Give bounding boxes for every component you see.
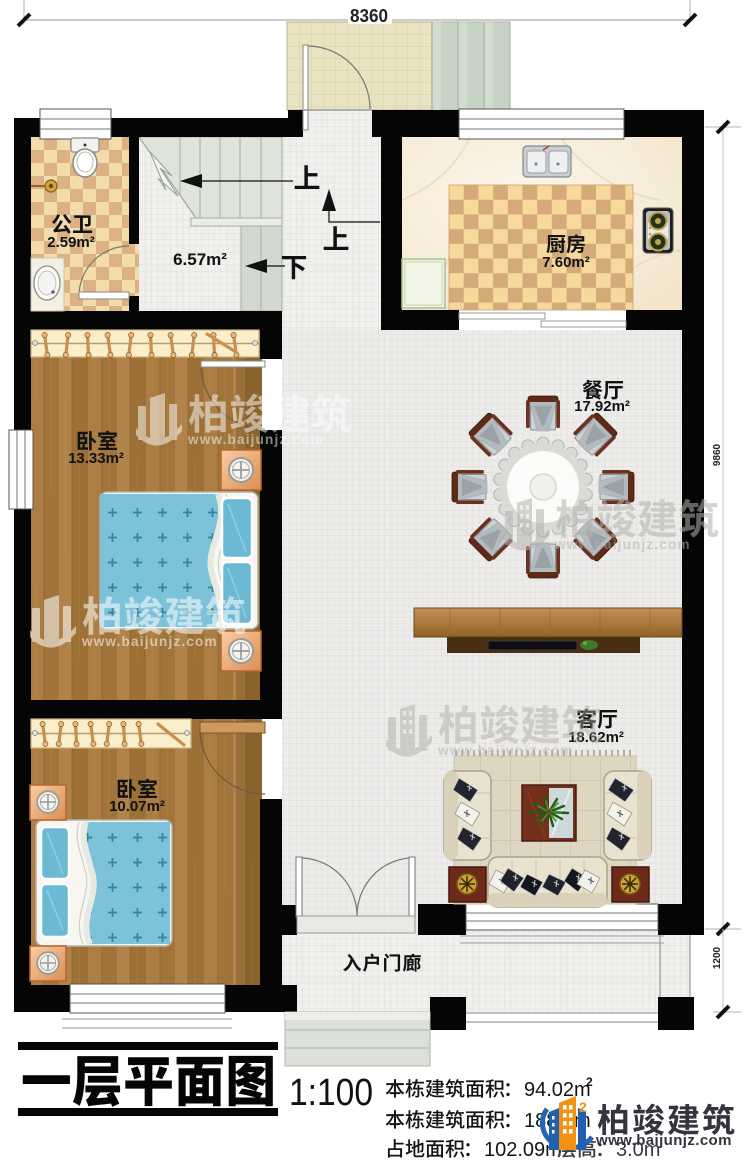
svg-text:2: 2 [586,1075,593,1089]
svg-text:7.60m²: 7.60m² [542,254,590,271]
svg-text:1200: 1200 [712,946,723,969]
svg-text:www.baijunjz.com: www.baijunjz.com [595,1132,732,1149]
svg-text:1:100: 1:100 [289,1072,373,1114]
svg-text:www.baijunjz.com: www.baijunjz.com [187,432,324,447]
svg-text:13.33m²: 13.33m² [68,450,124,467]
svg-text:www.baijunjz.com: www.baijunjz.com [554,537,691,552]
svg-text:9860: 9860 [712,443,723,466]
svg-text:10.07m²: 10.07m² [109,798,165,815]
svg-text:2: 2 [579,1099,587,1115]
svg-text:www.baijunjz.com: www.baijunjz.com [437,743,574,758]
svg-text:www.baijunjz.com: www.baijunjz.com [81,634,218,649]
svg-text:17.92m²: 17.92m² [574,398,630,415]
svg-text:2.59m²: 2.59m² [47,234,95,251]
svg-text:6.57m²: 6.57m² [173,250,227,269]
svg-text:8360: 8360 [350,6,388,26]
svg-text:94.02m: 94.02m [524,1079,591,1101]
